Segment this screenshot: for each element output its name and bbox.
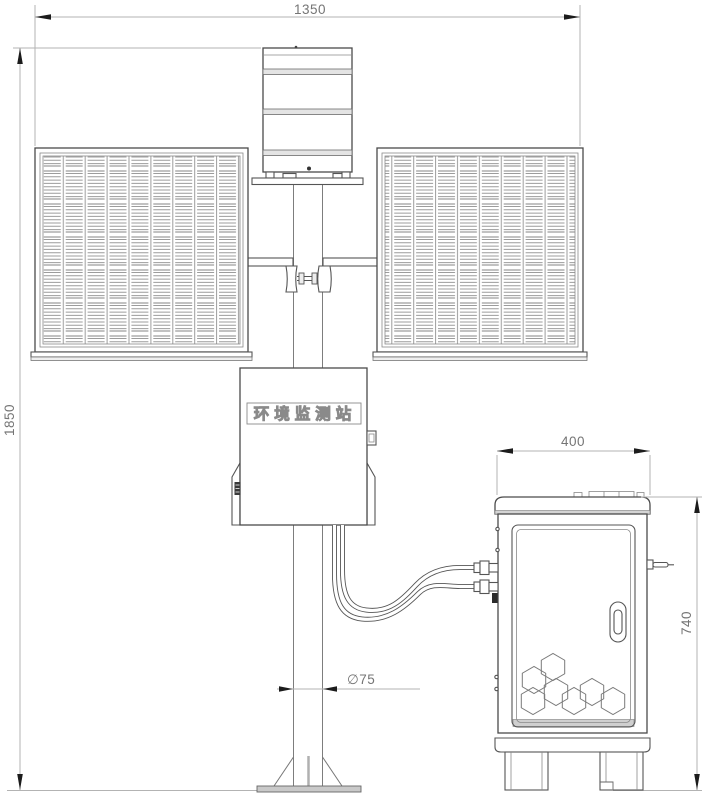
hinge-pin [495,687,498,690]
arrow-down-icon [694,774,700,790]
cable-gland-upper [474,561,498,575]
arrow-right-icon [279,686,293,691]
beacon-rivet-bottom [307,167,311,171]
door-sill [513,720,634,727]
equipment-cabinet [492,492,674,791]
dim-pole-diameter-label: ∅75 [347,672,375,687]
clamp-nut-left [299,273,304,284]
arrow-left-icon [497,448,513,454]
clamp-shell-left [286,266,297,292]
gland-tip [474,563,480,573]
cable-assembly [335,525,499,619]
cabinet-top-fitting [574,493,582,498]
dim-width-top-label: 1350 [294,2,326,17]
hinge-pin [495,675,498,678]
arrow-left-icon [35,14,51,20]
base-plate [257,786,361,792]
cable-gland-lower [474,580,498,594]
cable-upper [343,525,479,610]
solar-panel-left [31,148,252,361]
door-handle-inner [614,610,622,634]
clamp-shell-right [318,266,332,292]
arrow-right-icon [634,448,650,454]
gland-collar [489,583,498,592]
dim-cabinet-width-label: 400 [561,434,585,449]
dimension-cabinet-width: 400 [497,434,650,495]
beacon-mount-plate [252,178,363,185]
clamp-nut-right [312,273,317,284]
hinge-pin [496,527,499,530]
panel-cells [43,156,240,344]
beacon-foot [266,172,274,178]
arrow-right-icon [564,14,580,20]
control-box: 环境监测站 [232,368,376,525]
panel-rail-top [373,352,587,357]
pole-base [257,756,361,792]
extension-lines [497,455,650,495]
side-connector [492,593,498,603]
beacon-band [263,150,352,156]
gland-nut [480,561,489,575]
beacon-rivet-top [295,46,298,49]
beacon-foot [342,172,350,178]
arrow-up-icon [694,497,700,513]
beacon-foot [283,174,296,179]
sensor-beacon [252,46,363,185]
cabinet-top-plate [589,492,634,498]
beacon-band [263,109,352,115]
gland-collar [489,564,498,573]
arrow-up-icon [17,48,23,64]
arrow-left-icon [323,686,337,691]
dim-height-left-label: 1850 [2,404,17,436]
side-latch [367,431,376,445]
drawing-canvas: 环境监测站 [0,0,716,800]
panel-arm-right [323,258,378,266]
panel-arm-left [248,258,293,266]
cabinet-top-fitting [637,493,644,498]
gland-nut [480,580,489,594]
dim-cabinet-height-label: 740 [679,611,694,635]
beacon-band [263,69,352,75]
gland-tip [474,582,480,592]
gusset-right [323,757,343,786]
cabinet-bottom-band [495,738,650,752]
panel-rail-top [31,352,252,357]
hinge-pin [496,548,499,551]
station-name-label: 环境监测站 [254,404,357,423]
cabinet-leg-left [505,752,548,790]
control-box-body [240,368,367,525]
gusset-left [274,757,294,786]
panel-rail-bottom [31,357,252,361]
technical-drawing: 环境监测站 [0,0,716,800]
panel-rail-bottom [373,357,587,361]
control-box-bracket-right [367,463,375,525]
panel-cells [385,156,575,344]
solar-panel-right [373,148,587,361]
side-rod-base [647,560,653,569]
arrow-down-icon [17,774,23,790]
side-rod [653,563,668,568]
